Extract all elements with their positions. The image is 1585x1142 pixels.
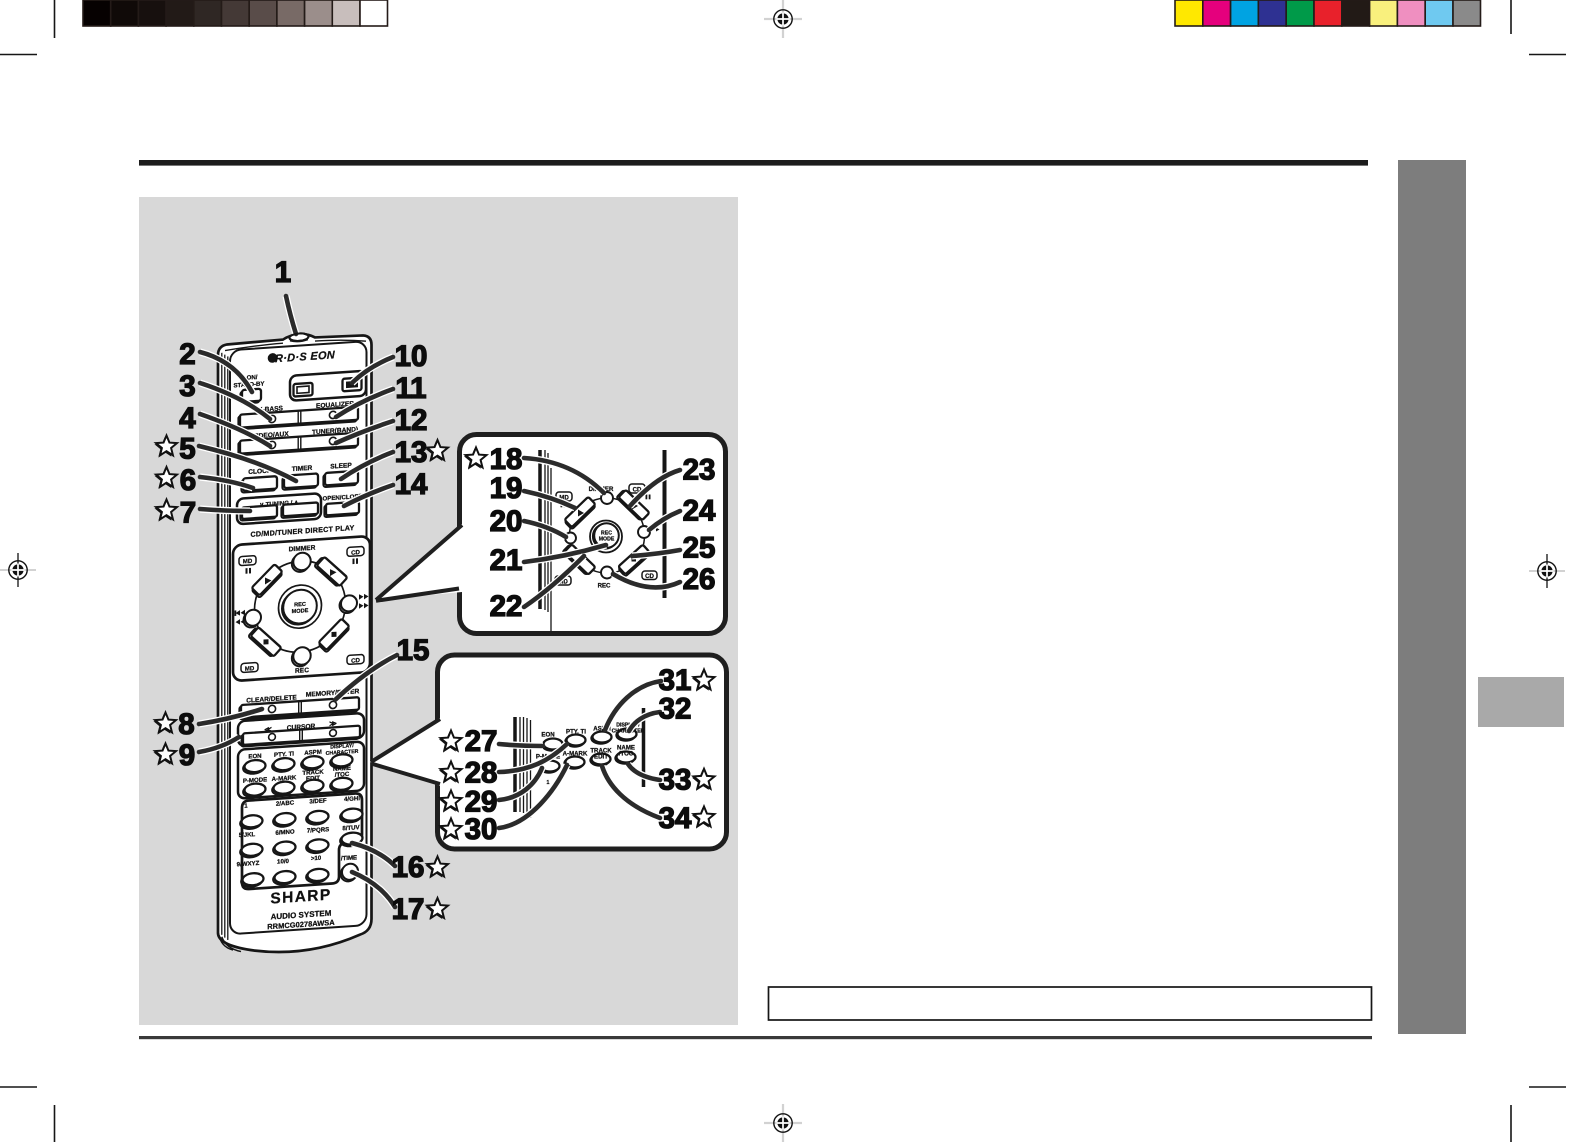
svg-text:14: 14 [395, 468, 428, 501]
svg-text:>10: >10 [311, 855, 322, 863]
svg-text:CD: CD [351, 657, 360, 665]
svg-text:7: 7 [180, 497, 196, 530]
svg-text:11: 11 [395, 372, 426, 405]
svg-text:27: 27 [465, 725, 498, 758]
svg-text:34: 34 [659, 802, 692, 835]
svg-text:MODE: MODE [599, 537, 615, 543]
svg-text:6/MNO: 6/MNO [275, 828, 295, 836]
svg-text:7/PQRS: 7/PQRS [307, 826, 329, 834]
svg-text:15: 15 [397, 634, 430, 667]
svg-text:REC: REC [598, 583, 611, 590]
svg-text:/TOC: /TOC [619, 751, 634, 758]
svg-text:32: 32 [659, 693, 692, 726]
svg-text:5/JKL: 5/JKL [239, 831, 256, 839]
svg-text:CD: CD [351, 549, 360, 557]
svg-text:30: 30 [465, 813, 498, 846]
svg-text:EDIT: EDIT [594, 754, 608, 761]
svg-text:21: 21 [490, 544, 523, 577]
svg-text:17: 17 [392, 893, 425, 926]
svg-text:1: 1 [244, 803, 248, 810]
svg-text:20: 20 [490, 505, 523, 538]
svg-text:10: 10 [395, 340, 428, 373]
svg-text:10/0: 10/0 [277, 858, 289, 866]
svg-text:REC: REC [295, 667, 309, 675]
svg-text:CD: CD [645, 573, 654, 580]
svg-text:4/GHI: 4/GHI [344, 795, 360, 803]
svg-text:SLEEP: SLEEP [330, 462, 352, 470]
svg-text:3: 3 [179, 370, 195, 403]
svg-text:1: 1 [275, 256, 291, 289]
svg-text:19: 19 [490, 472, 523, 505]
svg-text:22: 22 [490, 590, 523, 623]
svg-text:/TIME: /TIME [341, 854, 357, 862]
svg-text:2/ABC: 2/ABC [276, 799, 295, 807]
svg-text:8/TUV: 8/TUV [342, 824, 360, 832]
svg-text:24: 24 [683, 495, 716, 528]
svg-text:12: 12 [395, 404, 428, 437]
svg-text:PTY. TI: PTY. TI [566, 729, 586, 736]
svg-text:16: 16 [392, 851, 425, 884]
svg-text:9: 9 [179, 739, 195, 772]
svg-text:4: 4 [179, 402, 196, 435]
svg-text:1: 1 [547, 780, 550, 786]
svg-text:23: 23 [683, 454, 716, 487]
svg-text:26: 26 [683, 563, 716, 596]
svg-text:EON: EON [541, 732, 554, 739]
svg-text:MODE: MODE [292, 608, 309, 615]
svg-text:33: 33 [659, 764, 692, 797]
svg-text:25: 25 [683, 532, 716, 565]
svg-text:TIMER: TIMER [292, 465, 313, 473]
svg-text:5: 5 [179, 433, 195, 466]
svg-text:A-MARK: A-MARK [563, 751, 588, 758]
svg-text:2: 2 [179, 338, 195, 371]
svg-text:6: 6 [180, 464, 196, 497]
svg-text:MD: MD [243, 558, 253, 566]
svg-text:13: 13 [395, 436, 428, 469]
svg-text:MD: MD [245, 665, 255, 673]
svg-text:8: 8 [178, 708, 194, 741]
svg-text:3/DEF: 3/DEF [309, 797, 327, 805]
